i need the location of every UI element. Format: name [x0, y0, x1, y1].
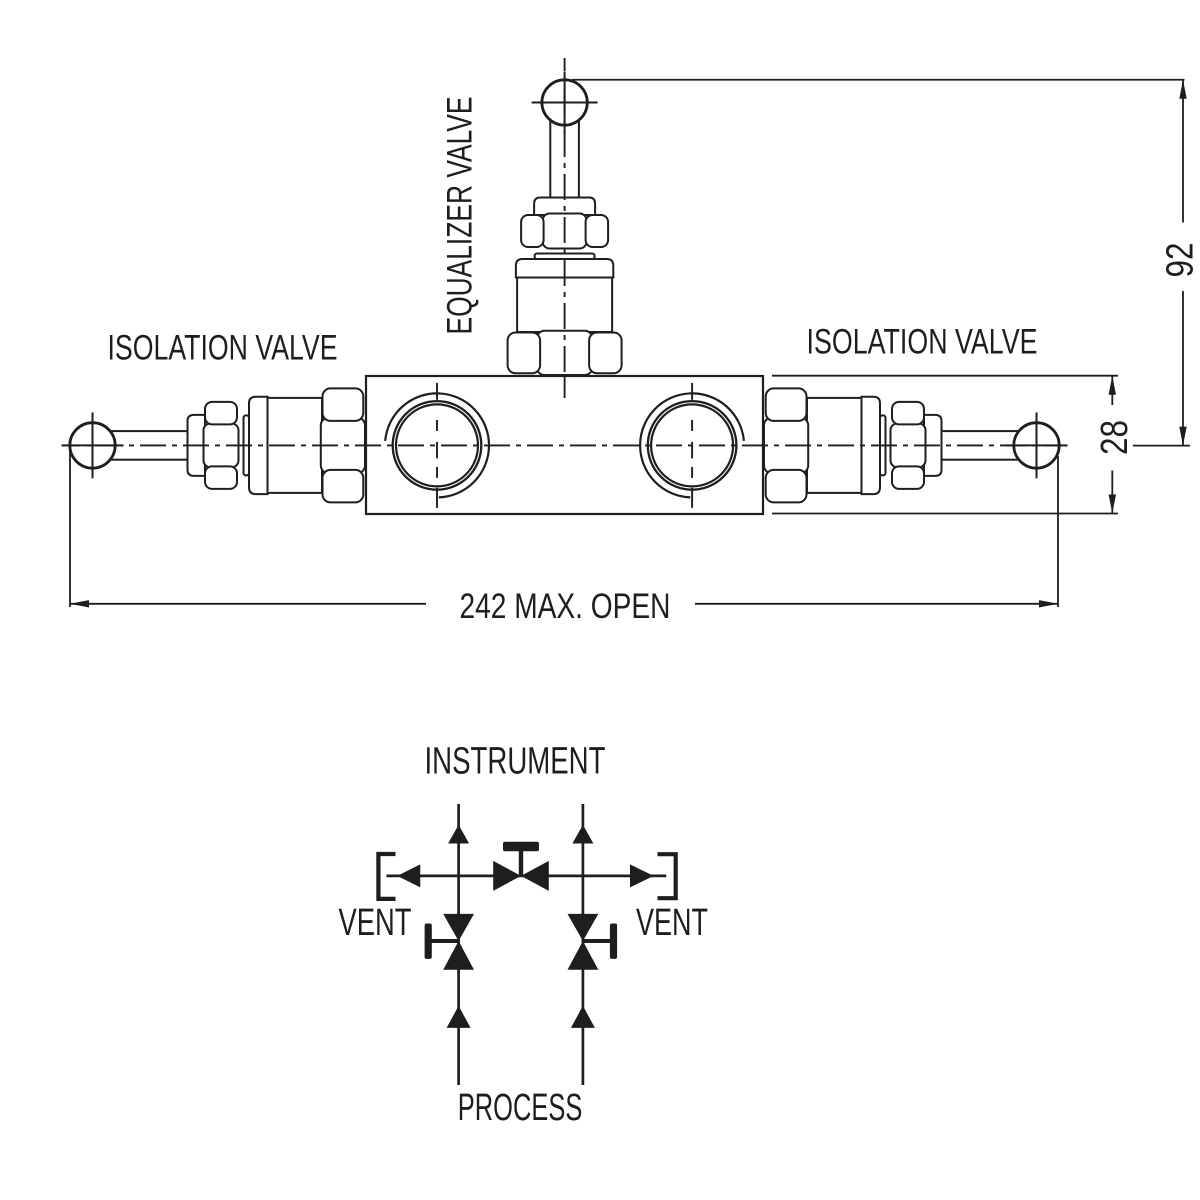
- svg-text:PROCESS: PROCESS: [458, 1087, 583, 1129]
- svg-text:VENT: VENT: [636, 902, 708, 944]
- svg-text:EQUALIZER VALVE: EQUALIZER VALVE: [441, 97, 480, 335]
- svg-text:242 MAX. OPEN: 242 MAX. OPEN: [460, 587, 671, 626]
- svg-text:INSTRUMENT: INSTRUMENT: [425, 741, 606, 783]
- svg-text:ISOLATION VALVE: ISOLATION VALVE: [108, 329, 338, 368]
- svg-text:92: 92: [1160, 243, 1200, 278]
- svg-text:VENT: VENT: [339, 902, 412, 944]
- svg-text:28: 28: [1094, 420, 1136, 455]
- svg-text:ISOLATION VALVE: ISOLATION VALVE: [807, 322, 1038, 361]
